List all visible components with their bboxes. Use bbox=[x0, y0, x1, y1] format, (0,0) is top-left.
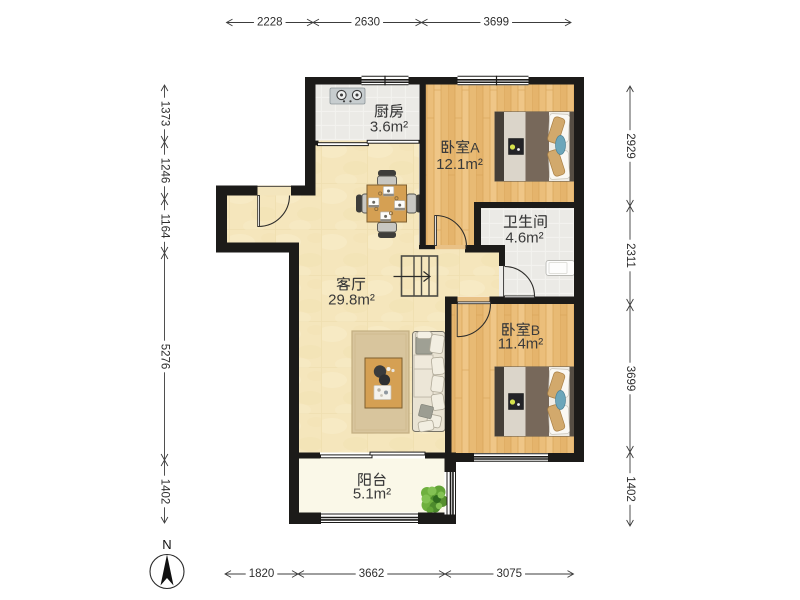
svg-text:4.6m²: 4.6m² bbox=[505, 230, 543, 247]
svg-text:1246: 1246 bbox=[159, 158, 171, 184]
svg-text:1402: 1402 bbox=[624, 476, 636, 502]
svg-text:12.1m²: 12.1m² bbox=[436, 156, 483, 173]
svg-text:29.8m²: 29.8m² bbox=[328, 292, 375, 309]
svg-text:2311: 2311 bbox=[624, 243, 636, 268]
svg-text:3699: 3699 bbox=[483, 17, 509, 29]
svg-text:1402: 1402 bbox=[159, 479, 171, 505]
svg-text:1164: 1164 bbox=[159, 214, 171, 239]
svg-text:3662: 3662 bbox=[359, 568, 385, 580]
svg-text:11.4m²: 11.4m² bbox=[498, 336, 544, 353]
svg-text:A: A bbox=[470, 140, 480, 156]
svg-text:5276: 5276 bbox=[159, 344, 171, 370]
svg-text:N: N bbox=[162, 537, 171, 552]
svg-text:3075: 3075 bbox=[496, 568, 522, 580]
svg-text:3.6m²: 3.6m² bbox=[370, 119, 408, 136]
svg-text:1820: 1820 bbox=[249, 568, 275, 580]
svg-text:3699: 3699 bbox=[624, 366, 636, 392]
svg-text:2929: 2929 bbox=[624, 133, 636, 159]
svg-text:5.1m²: 5.1m² bbox=[353, 486, 391, 503]
svg-text:2228: 2228 bbox=[257, 17, 283, 29]
svg-text:2630: 2630 bbox=[354, 17, 380, 29]
svg-text:1373: 1373 bbox=[159, 101, 171, 127]
